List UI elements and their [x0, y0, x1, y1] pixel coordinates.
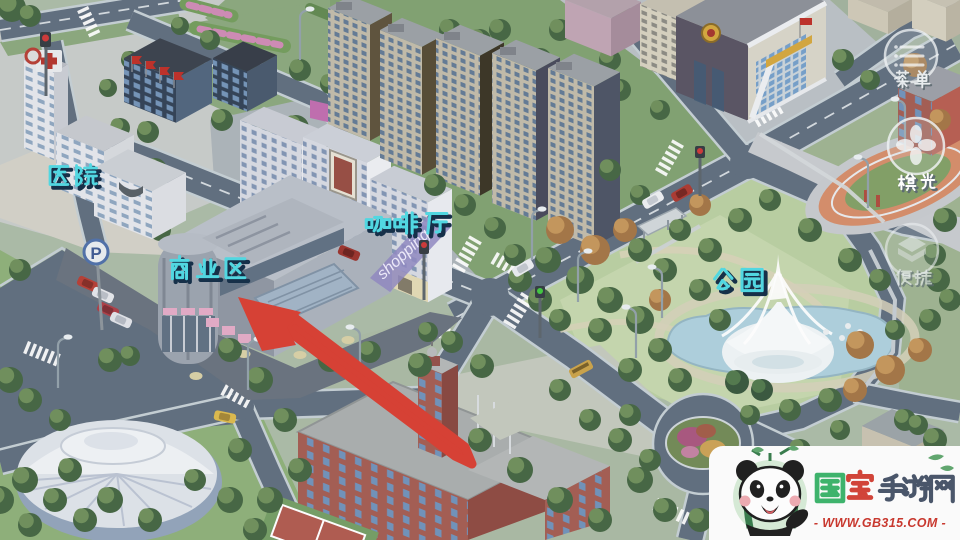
svg-text:P: P [90, 244, 101, 263]
svg-text:- WWW.GB315.COM -: - WWW.GB315.COM - [814, 516, 946, 530]
